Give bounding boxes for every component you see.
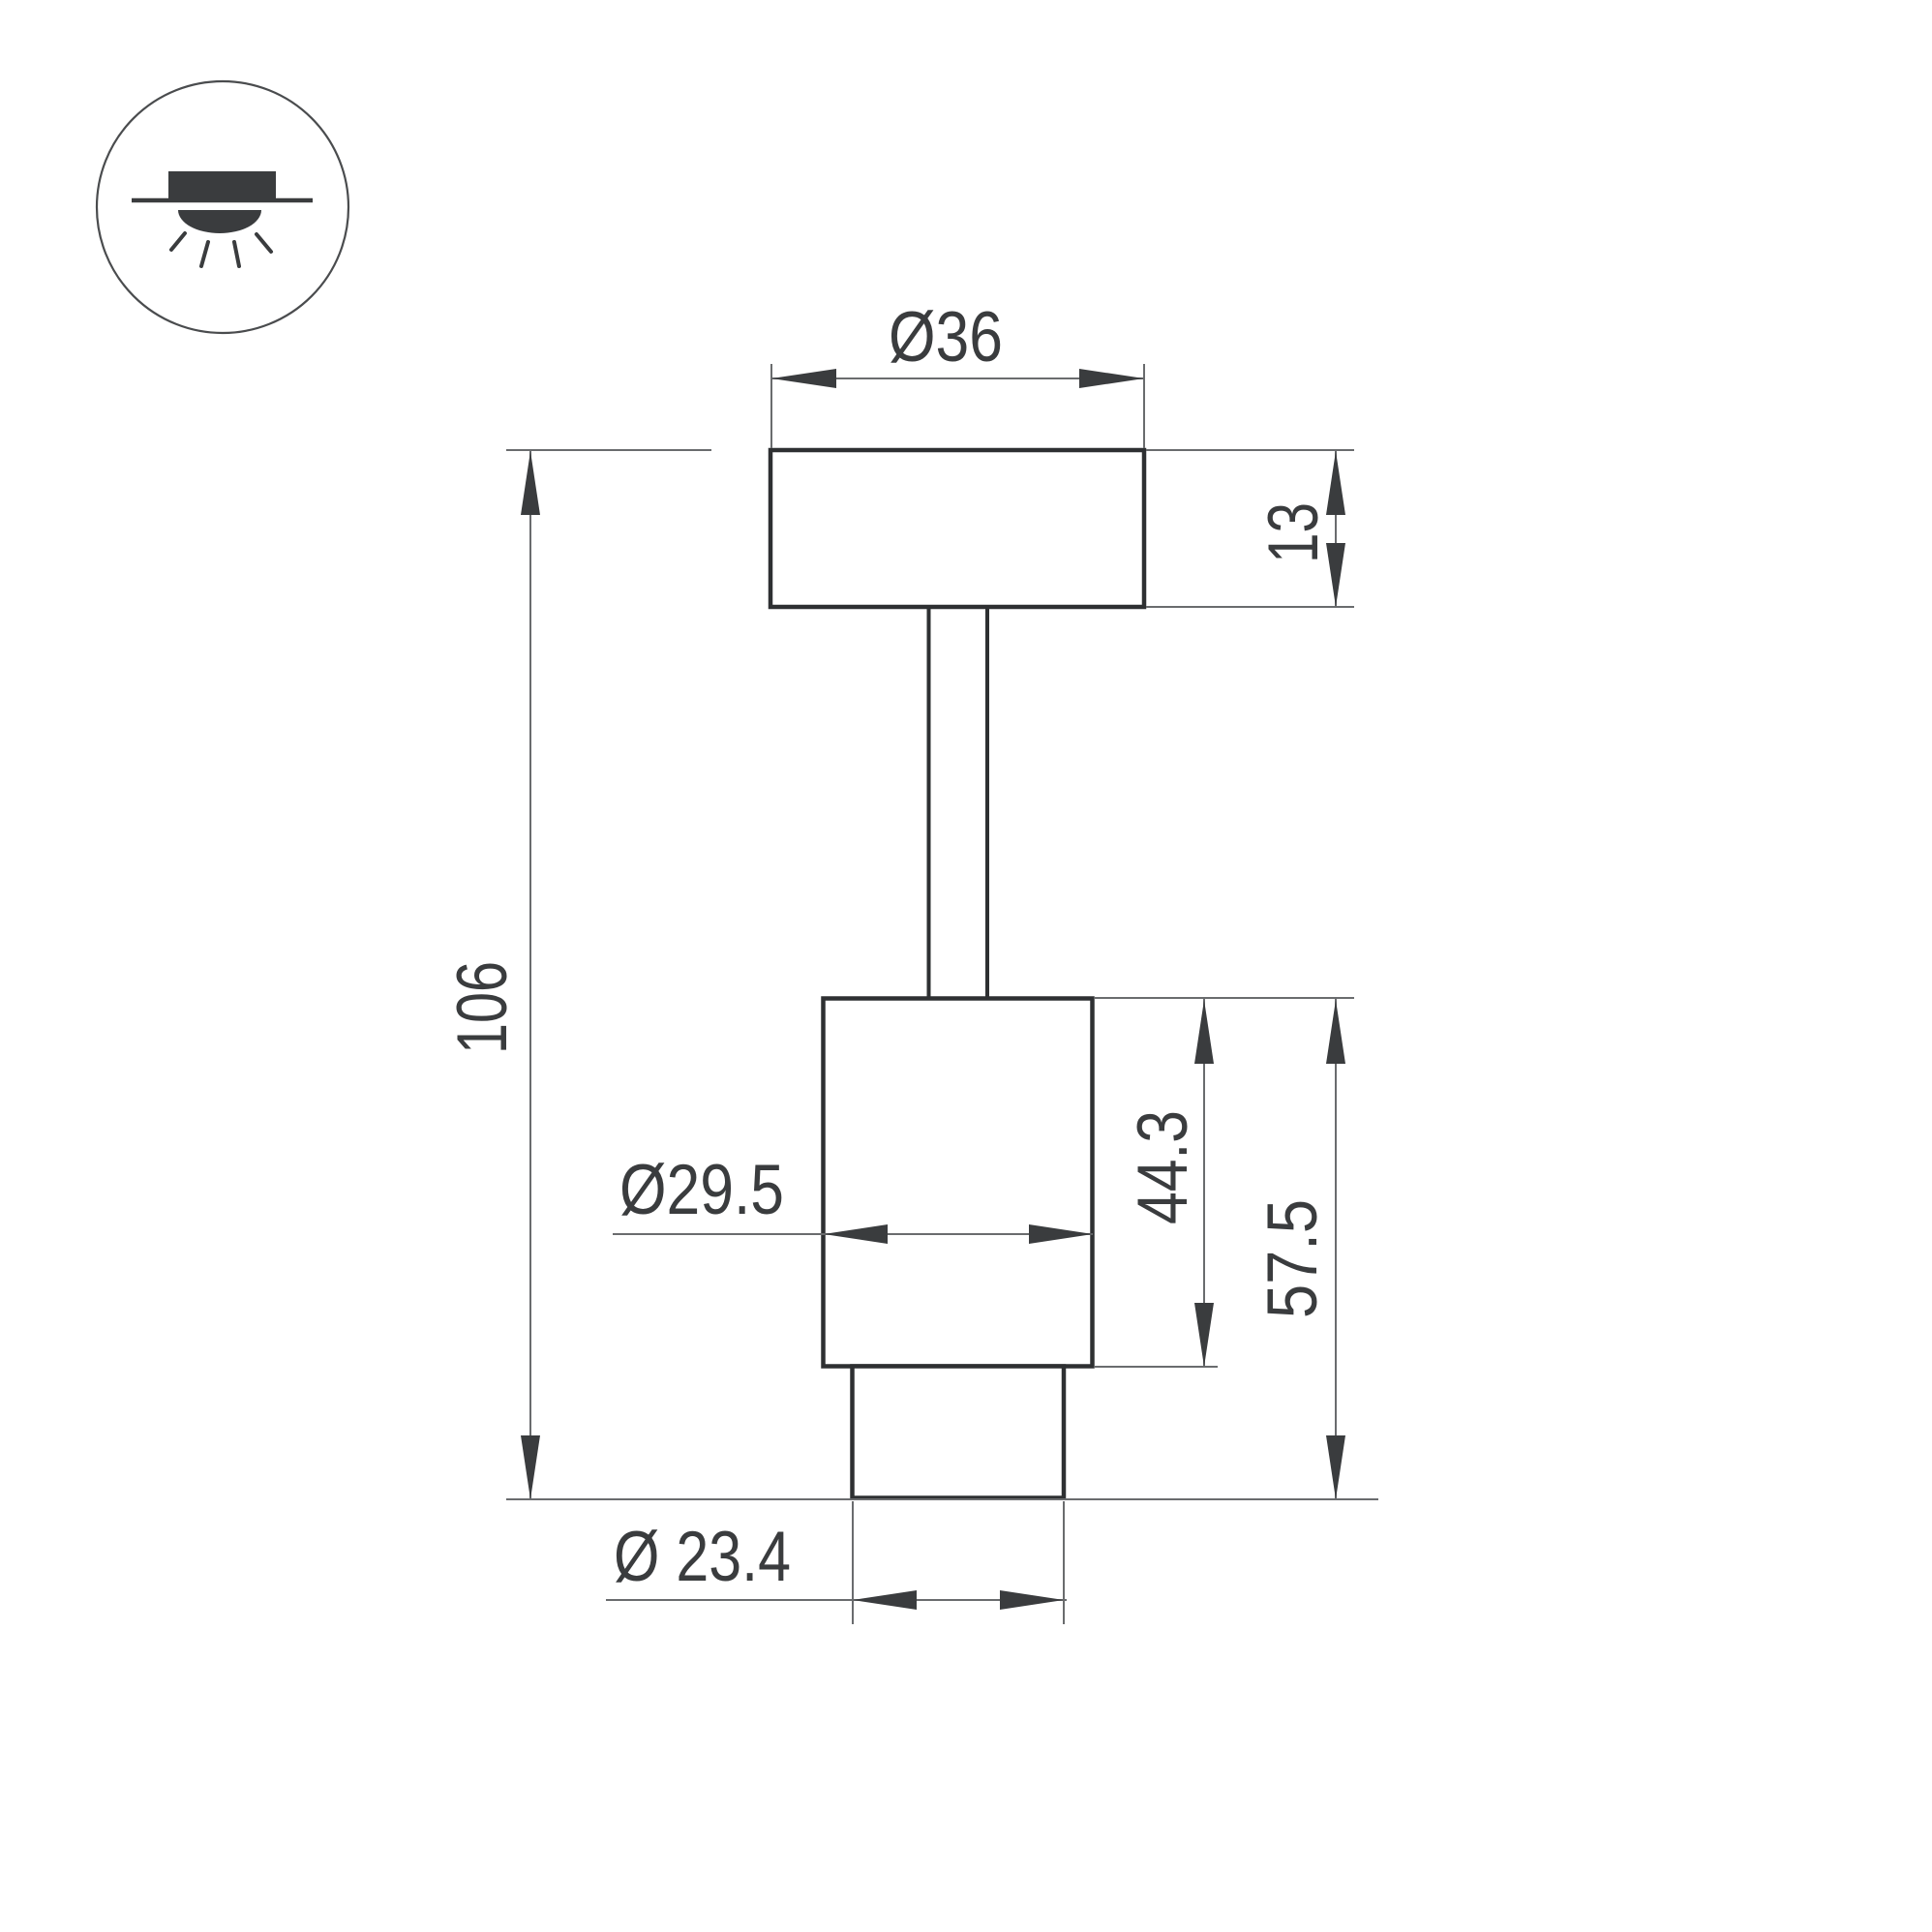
svg-text:106: 106 (443, 961, 522, 1054)
svg-text:Ø 23.4: Ø 23.4 (614, 1518, 791, 1596)
svg-text:57.5: 57.5 (1253, 1199, 1332, 1318)
svg-text:44.3: 44.3 (1124, 1110, 1202, 1224)
svg-text:13: 13 (1254, 502, 1333, 563)
svg-text:Ø29.5: Ø29.5 (619, 1151, 784, 1229)
svg-text:Ø36: Ø36 (889, 298, 1003, 377)
